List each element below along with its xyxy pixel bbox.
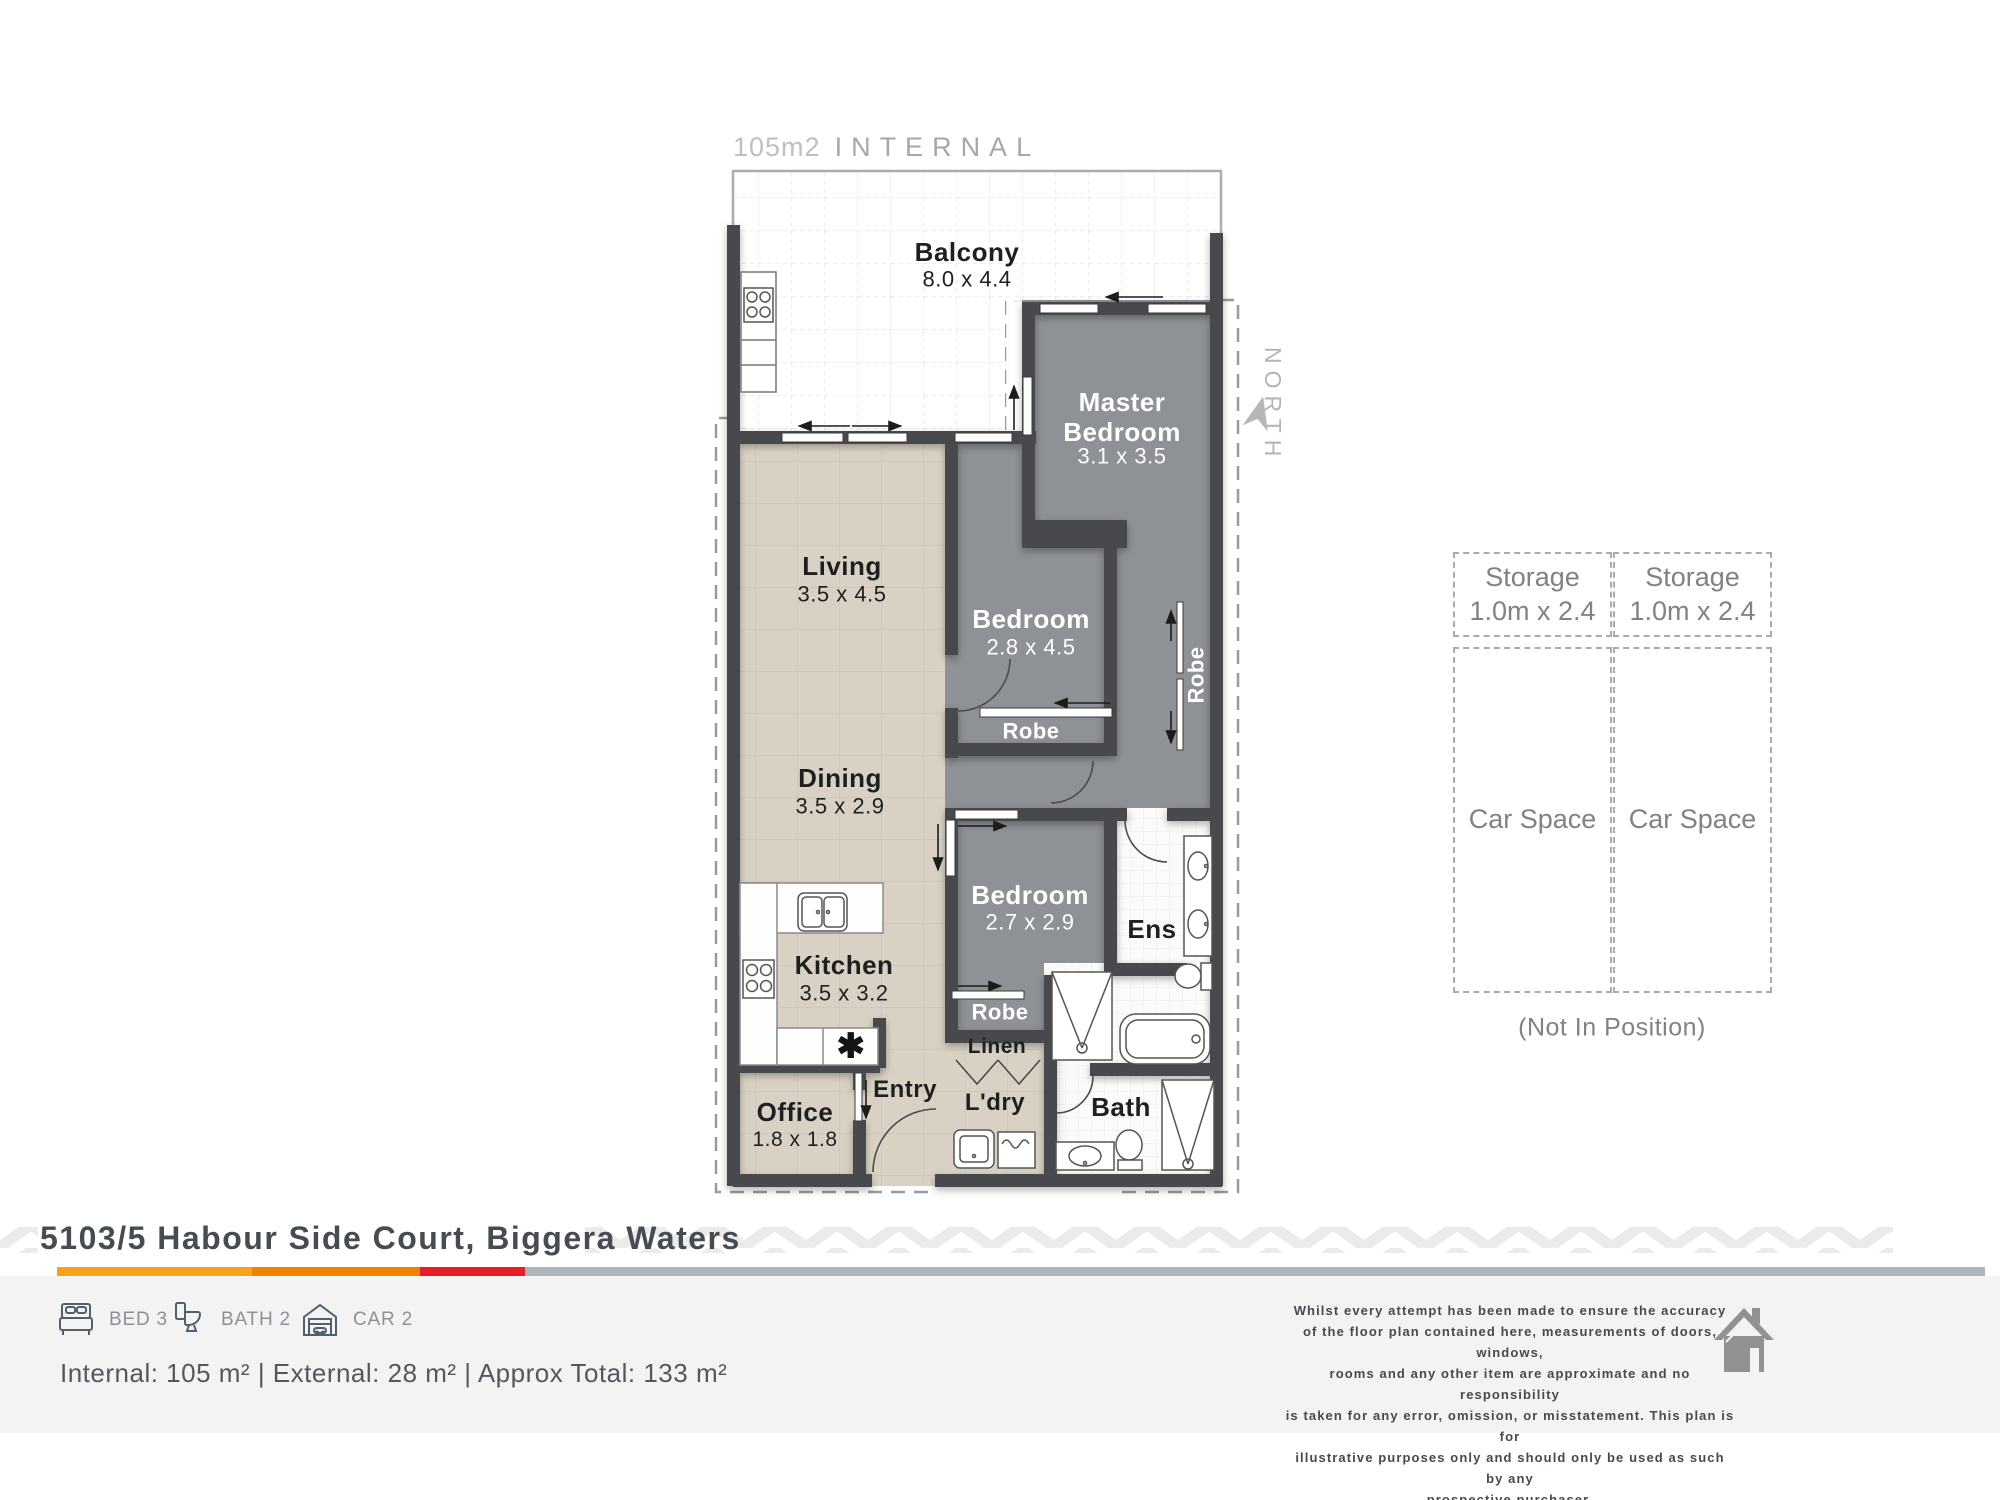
room-label-ensuite: Ens [1127, 915, 1176, 945]
disclaimer-line: prospective purchaser. [1285, 1489, 1735, 1500]
hob-icon [743, 960, 774, 998]
storage1-dims: 1.0m x 2.4 [1469, 595, 1595, 629]
spec-bath: BATH 2 [168, 1300, 291, 1340]
room-label-bedroom3: Bedroom [971, 881, 1089, 911]
internal-area-value: 105m2 [733, 132, 821, 162]
room-dims-living: 3.5 x 4.5 [798, 581, 887, 606]
car-space-box-2: Car Space [1613, 647, 1772, 993]
area-summary: Internal: 105 m² | External: 28 m² | App… [60, 1358, 727, 1389]
room-dims-bedroom3: 2.7 x 2.9 [986, 909, 1075, 934]
washing-machine-icon [998, 1132, 1035, 1168]
dishwasher-symbol: ✱ [837, 1027, 866, 1066]
house-logo-icon [1712, 1298, 1776, 1378]
toilet-icon [168, 1300, 208, 1340]
spec-bed: BED 3 [56, 1300, 168, 1340]
room-label-bath: Bath [1091, 1093, 1151, 1123]
room-dims-balcony: 8.0 x 4.4 [923, 266, 1012, 291]
property-address: 5103/5 Habour Side Court, Biggera Waters [40, 1220, 741, 1257]
storage-box-1: Storage 1.0m x 2.4 [1453, 552, 1612, 637]
room-label-bedroom2: Bedroom [972, 605, 1090, 635]
room-dims-master-bedroom: 3.1 x 3.5 [1078, 443, 1167, 468]
robe-label-bedroom3: Robe [972, 999, 1029, 1024]
room-label-kitchen: Kitchen [795, 951, 894, 981]
accent-bar-gold [57, 1267, 252, 1276]
garage-icon [300, 1300, 340, 1340]
laundry-tub-icon [954, 1130, 994, 1168]
room-label-office: Office [757, 1098, 834, 1128]
room-dims-bedroom2: 2.8 x 4.5 [987, 634, 1076, 659]
shower-icon [1052, 972, 1112, 1060]
storage-box-2: Storage 1.0m x 2.4 [1613, 552, 1772, 637]
room-label-living: Living [802, 552, 882, 582]
room-label-entry: Entry [873, 1076, 937, 1104]
bath-count: BATH 2 [221, 1309, 291, 1331]
disclaimer-line: rooms and any other item are approximate… [1285, 1363, 1735, 1405]
bathtub-icon [1120, 1014, 1210, 1064]
bbq-bench [741, 272, 776, 392]
laundry-fixtures [954, 1130, 1035, 1168]
car1-label: Car Space [1469, 803, 1597, 837]
room-label-linen: Linen [968, 1035, 1027, 1059]
disclaimer-line: of the floor plan contained here, measur… [1285, 1321, 1735, 1363]
bed-count: BED 3 [109, 1309, 168, 1331]
accent-bar-orange [252, 1267, 420, 1276]
internal-word: INTERNAL [835, 132, 1041, 162]
car-space-box-1: Car Space [1453, 647, 1612, 993]
disclaimer-line: is taken for any error, omission, or mis… [1285, 1405, 1735, 1447]
double-vanity-icon [1184, 836, 1212, 956]
room-dims-dining: 3.5 x 2.9 [796, 793, 885, 818]
north-label: NORTH [1259, 347, 1286, 463]
car2-label: Car Space [1629, 803, 1757, 837]
cooktop-icon [744, 288, 773, 322]
disclaimer-text: Whilst every attempt has been made to en… [1285, 1300, 1735, 1500]
accent-bar-red [420, 1267, 525, 1276]
room-dims-office: 1.8 x 1.8 [752, 1128, 837, 1152]
room-label-dining: Dining [798, 764, 882, 794]
parking-note: (Not In Position) [1518, 1014, 1706, 1043]
toilet-icon [1116, 1130, 1142, 1170]
disclaimer-line: Whilst every attempt has been made to en… [1285, 1300, 1735, 1321]
car-count: CAR 2 [353, 1309, 413, 1331]
disclaimer-line: illustrative purposes only and should on… [1285, 1447, 1735, 1489]
bed-icon [56, 1300, 96, 1340]
storage2-dims: 1.0m x 2.4 [1629, 595, 1755, 629]
shower-icon [1162, 1080, 1214, 1170]
toilet-icon [1175, 963, 1212, 990]
room-label-balcony: Balcony [915, 238, 1020, 268]
floorplan-page: 105m2INTERNAL NORTH Balcony 8.0 x 4.4 Ma… [0, 0, 2000, 1500]
accent-bar-gray [525, 1267, 1985, 1276]
storage2-label: Storage [1645, 561, 1740, 595]
room-label-master-bedroom: Master Bedroom [1052, 388, 1192, 448]
kitchen-sink-icon [798, 893, 847, 931]
robe-label-bedroom2: Robe [1003, 718, 1060, 743]
vanity-icon [1056, 1142, 1114, 1170]
internal-area-tag: 105m2INTERNAL [733, 132, 1040, 163]
storage1-label: Storage [1485, 561, 1580, 595]
robe-label-master: Robe [1183, 647, 1208, 704]
room-dims-kitchen: 3.5 x 3.2 [800, 980, 889, 1005]
room-label-laundry: L'dry [965, 1089, 1025, 1117]
spec-car: CAR 2 [300, 1300, 413, 1340]
